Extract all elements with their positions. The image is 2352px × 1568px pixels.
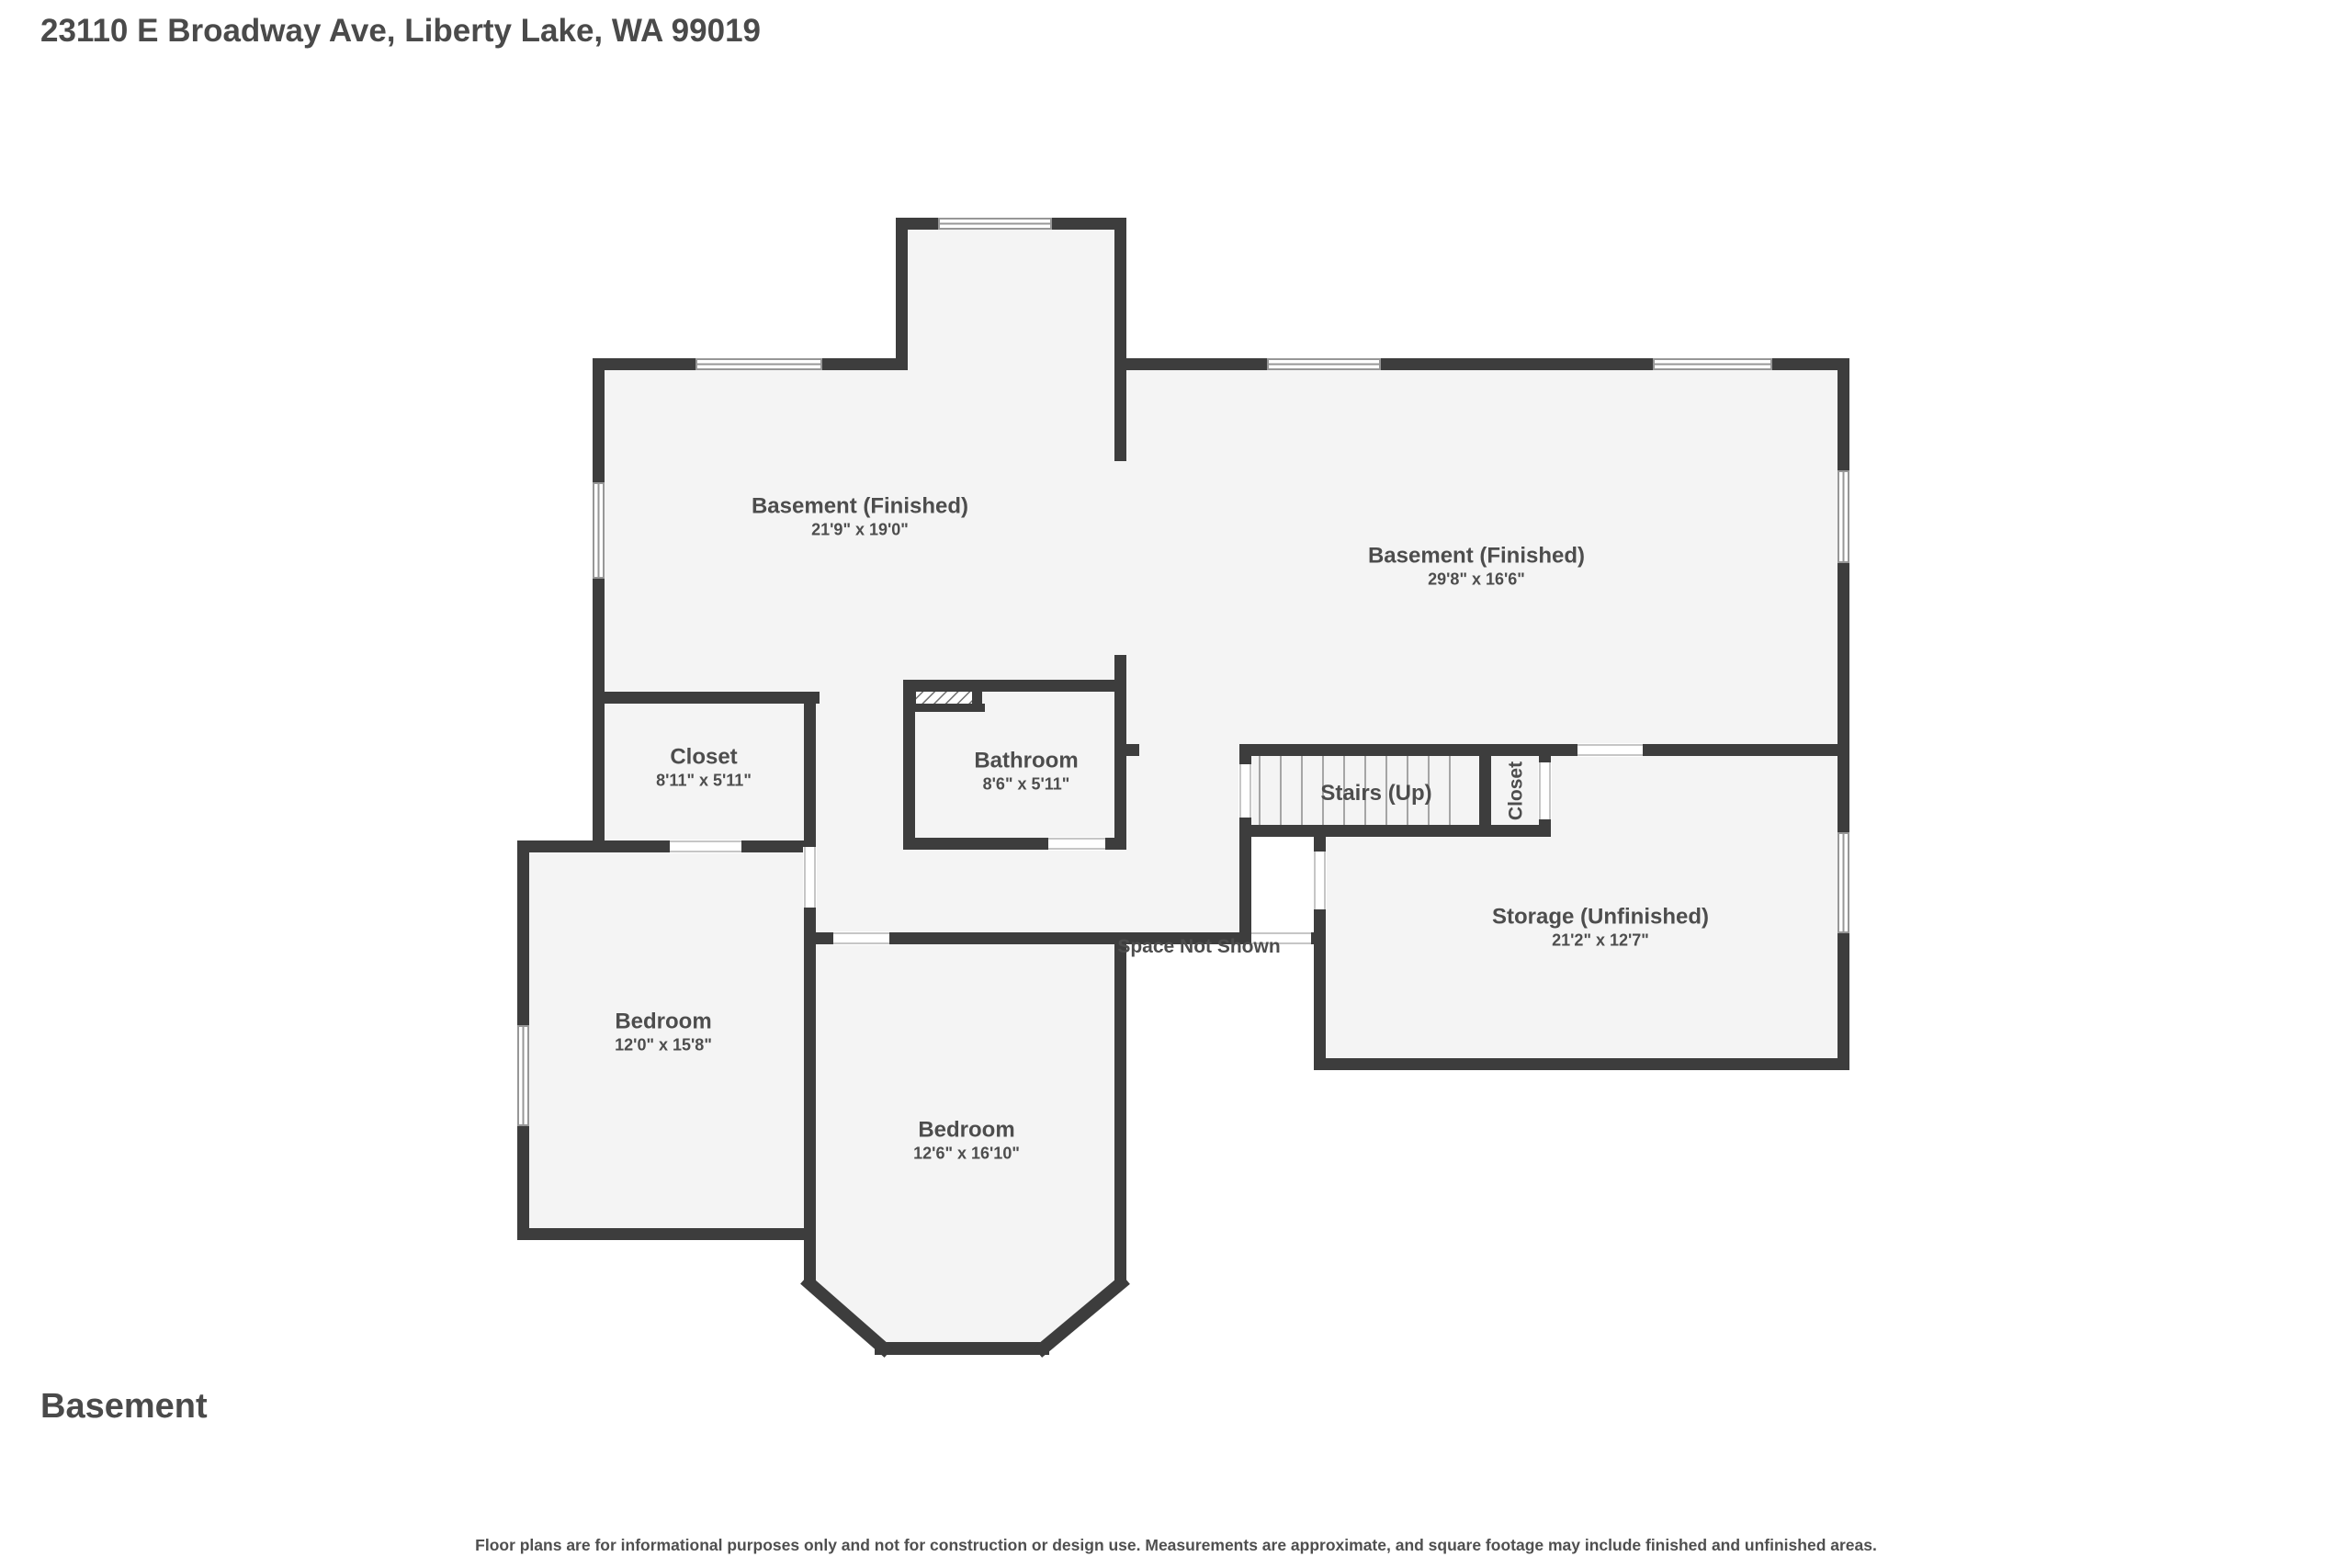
window-top-right-a — [1268, 359, 1380, 369]
window-bumpout — [939, 219, 1051, 229]
disclaimer-text: Floor plans are for informational purpos… — [0, 1536, 2352, 1555]
window-top-left — [696, 359, 821, 369]
floor-name: Basement — [40, 1387, 208, 1427]
window-top-right-b — [1654, 359, 1771, 369]
room-label-stairs: Stairs (Up) — [1320, 782, 1431, 806]
room-label-stairs-closet: Closet — [1505, 761, 1526, 820]
floor-plan: Basement (Finished) 21'9" x 19'0" Baseme… — [0, 0, 2352, 1568]
floor-plan-canvas — [0, 0, 2352, 1568]
room-label-basement-right: Basement (Finished) 29'8" x 16'6" — [1368, 544, 1585, 589]
vent-hatch — [915, 691, 985, 712]
room-label-bathroom: Bathroom 8'6" x 5'11" — [974, 749, 1078, 794]
room-label-basement-left: Basement (Finished) 21'9" x 19'0" — [752, 494, 968, 539]
room-label-storage: Storage (Unfinished) 21'2" x 12'7" — [1492, 905, 1709, 950]
room-label-bedroom-left: Bedroom 12'0" x 15'8" — [615, 1010, 712, 1055]
window-right-basement — [1838, 471, 1849, 562]
door-bedroom-left — [803, 847, 817, 908]
door-hall-west — [833, 931, 889, 945]
window-bedroom-left — [518, 1026, 528, 1125]
door-bathroom — [1048, 837, 1105, 851]
door-closet-left — [670, 840, 741, 853]
window-left-basement — [594, 483, 604, 578]
window-storage — [1838, 833, 1849, 932]
room-label-bedroom-bottom: Bedroom 12'6" x 16'10" — [913, 1118, 1020, 1163]
door-stairs-entry — [1238, 764, 1252, 818]
door-stairs-closet — [1538, 762, 1552, 819]
door-storage — [1313, 852, 1327, 909]
door-basement-storage — [1577, 743, 1643, 757]
space-not-shown-label: Space Not Shown — [1117, 936, 1280, 958]
room-label-closet: Closet 8'11" x 5'11" — [656, 745, 752, 790]
